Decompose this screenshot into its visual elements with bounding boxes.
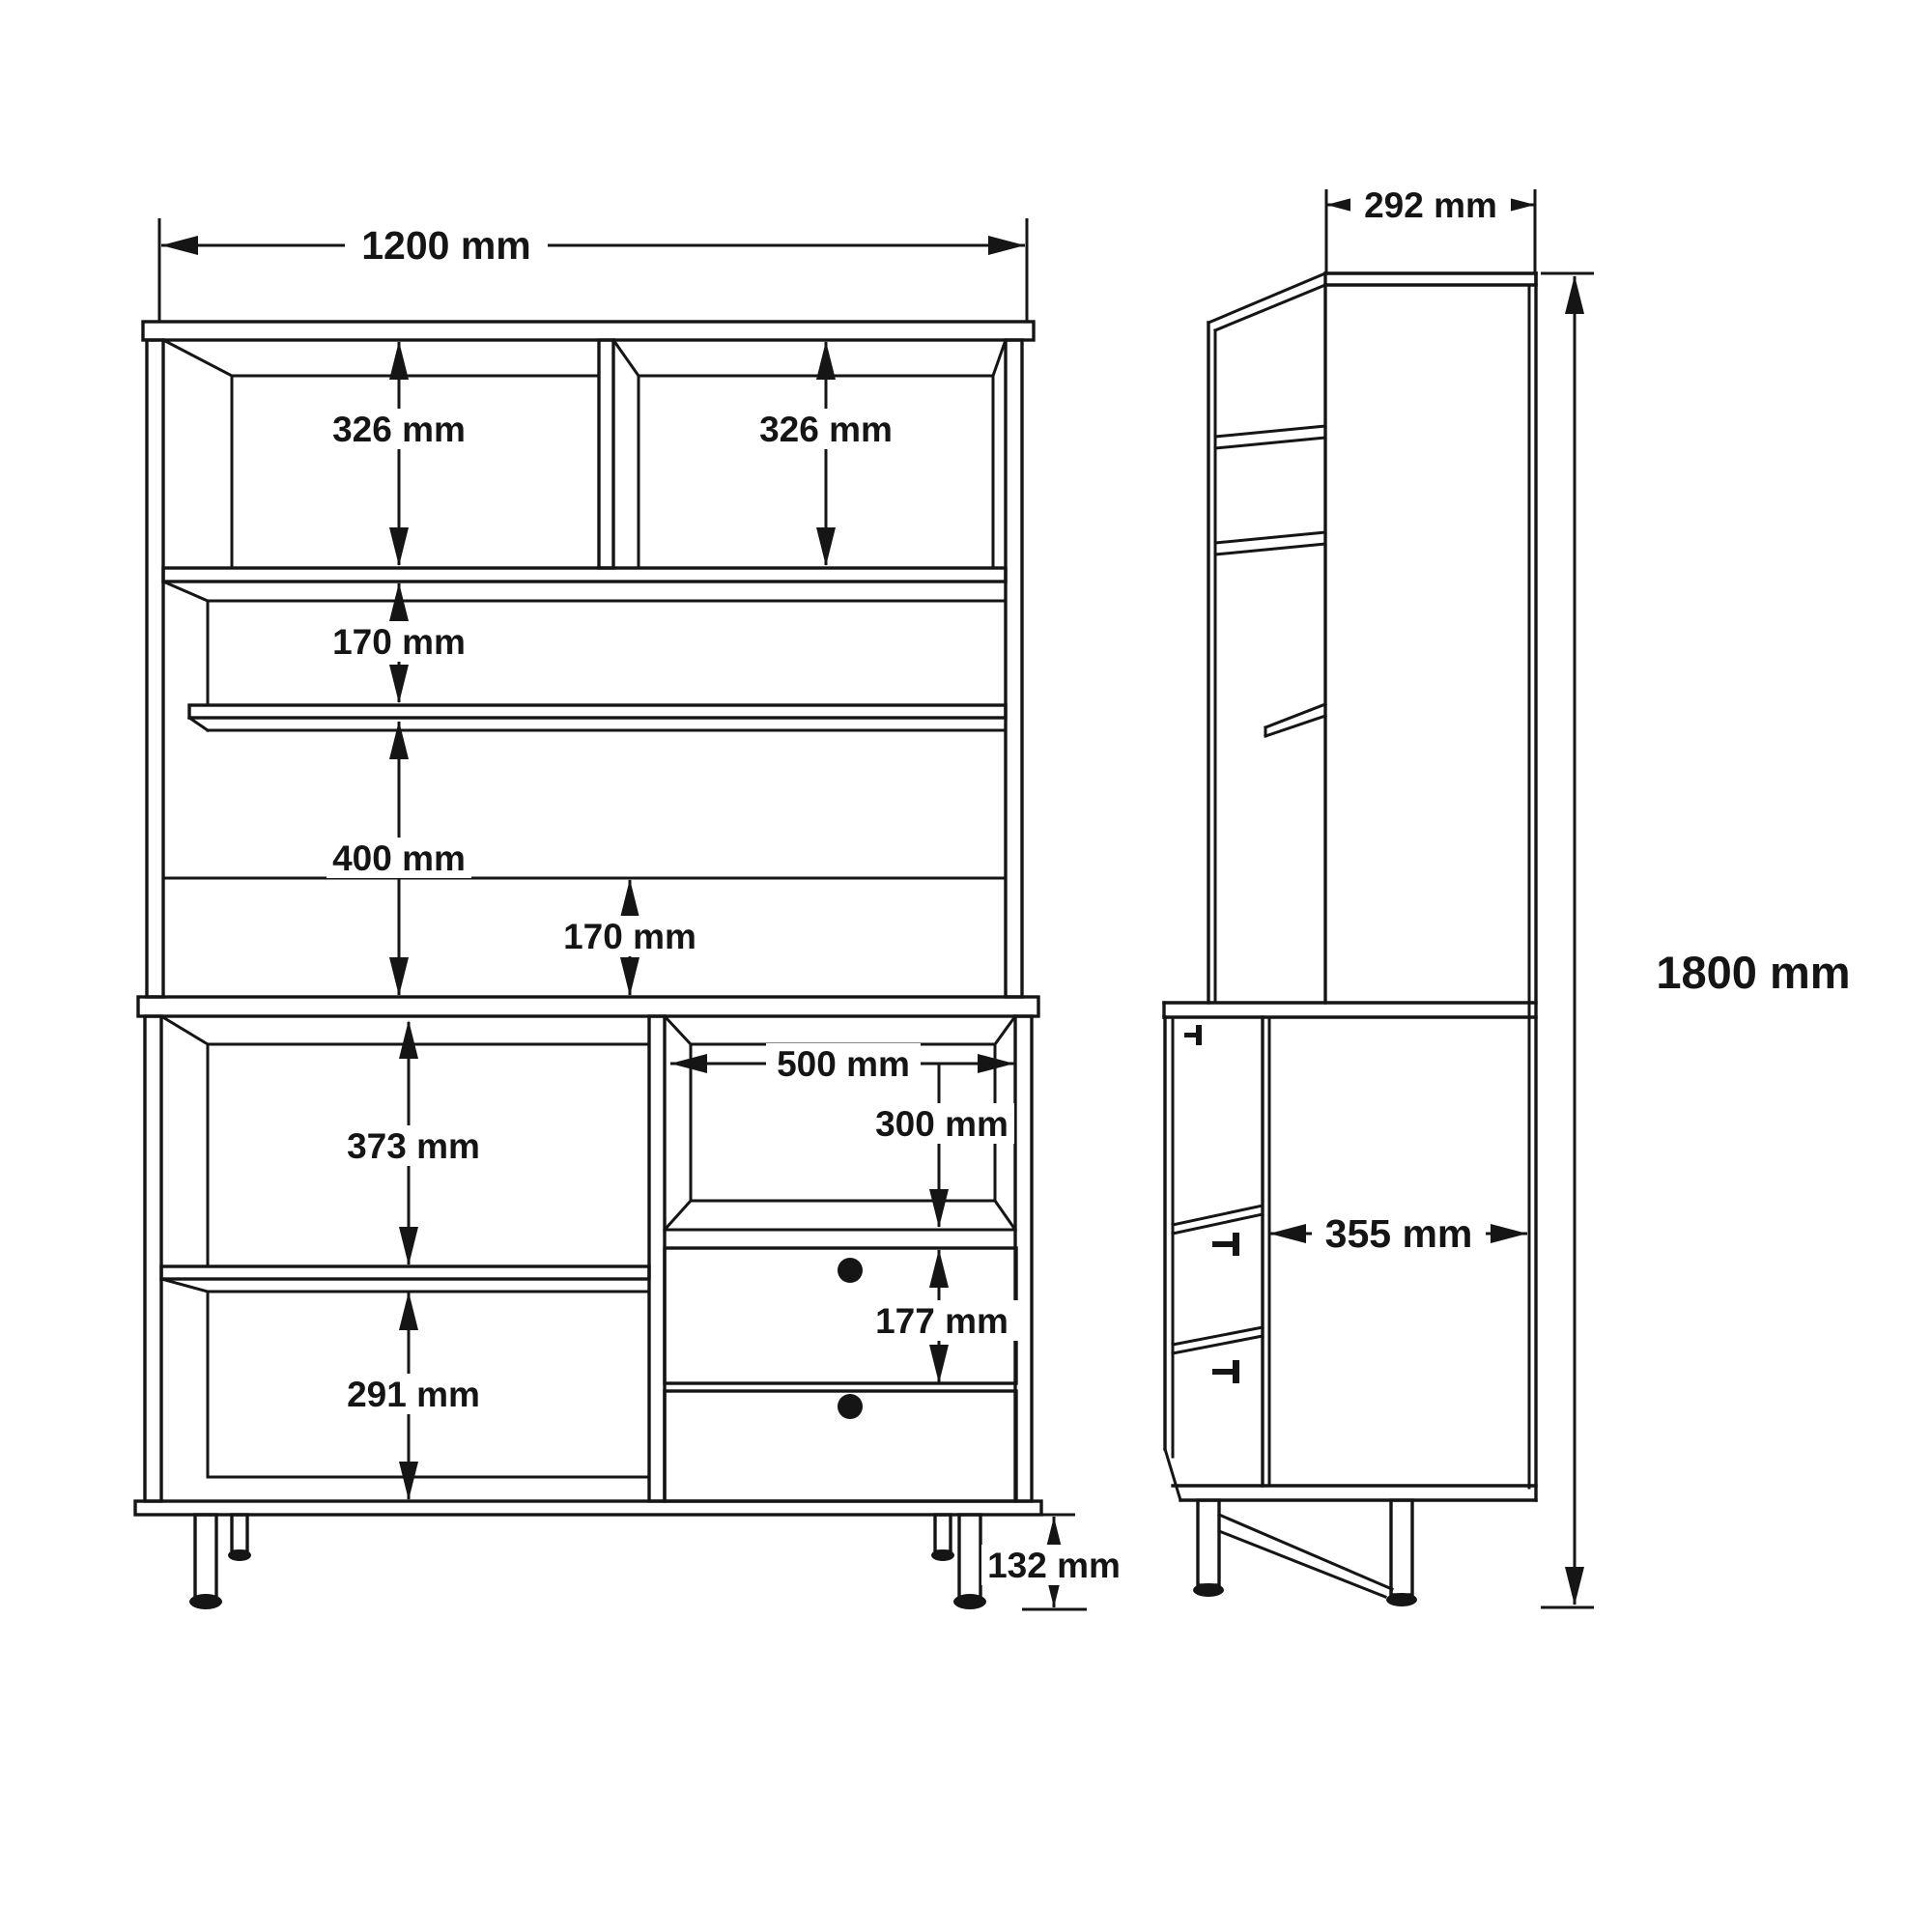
drawer-1-knob [838, 1258, 863, 1283]
back-right-leg [935, 1515, 951, 1551]
back-right-foot [931, 1549, 954, 1561]
counter-top [138, 997, 1038, 1016]
side-dimensions: 292 mm 355 mm 1800 mm [1269, 185, 1851, 1607]
front-drawers [665, 1248, 1016, 1501]
side-view: 292 mm 355 mm 1800 mm [1164, 185, 1851, 1607]
top-center-divider [599, 340, 613, 568]
label-400: 400 mm [332, 838, 466, 878]
label-326-right: 326 mm [759, 410, 893, 449]
back-left-foot [228, 1549, 251, 1561]
front-view: 1200 mm 326 mm 326 mm [135, 218, 1126, 1609]
label-170-upper: 170 mm [332, 622, 466, 662]
top-panel [143, 322, 1034, 340]
side-legs [1193, 1500, 1417, 1606]
front-right-foot [953, 1594, 986, 1609]
drawer-2-knob [838, 1394, 863, 1419]
cabinet-dimension-drawing: 1200 mm 326 mm 326 mm [0, 0, 1932, 1932]
front-left-foot [189, 1594, 222, 1609]
label-292: 292 mm [1364, 185, 1497, 225]
side-front-foot [1193, 1583, 1224, 1597]
base-left-shelf [161, 1266, 649, 1279]
label-291: 291 mm [347, 1375, 480, 1414]
label-355: 355 mm [1325, 1211, 1473, 1256]
label-170-counter: 170 mm [563, 917, 696, 956]
technical-drawing-page: 1200 mm 326 mm 326 mm [0, 0, 1932, 1932]
dim-leg-height: 132 mm [981, 1515, 1126, 1609]
hutch-shelf-1 [163, 568, 1006, 582]
dim-overall-width: 1200 mm [159, 218, 1027, 322]
dim-lower-depth: 355 mm [1269, 1211, 1527, 1256]
label-500: 500 mm [777, 1044, 910, 1084]
dim-niche-width: 500 mm [670, 1043, 1014, 1084]
side-drawer-2-handle [1212, 1360, 1239, 1383]
front-left-leg [195, 1515, 216, 1598]
label-326-left: 326 mm [332, 410, 466, 449]
side-structure [1164, 273, 1536, 1606]
front-right-leg [959, 1515, 980, 1598]
front-dimensions: 1200 mm 326 mm 326 mm [159, 218, 1126, 1609]
label-300: 300 mm [875, 1104, 1009, 1144]
dim-lower-left-upper: 373 mm [341, 1020, 486, 1265]
side-drawer-1-handle [1212, 1233, 1239, 1256]
side-front-leg [1198, 1500, 1219, 1585]
side-back-leg [1391, 1500, 1412, 1595]
dim-upper-depth: 292 mm [1326, 185, 1535, 273]
dim-niche-height: 300 mm [869, 1064, 1014, 1228]
side-back-foot [1386, 1593, 1417, 1606]
base-left-panel [145, 1016, 161, 1501]
hutch-right-panel [1006, 340, 1022, 997]
label-177: 177 mm [875, 1301, 1009, 1341]
label-132: 132 mm [987, 1546, 1121, 1585]
dim-middle-opening: 400 mm [327, 721, 471, 996]
dim-counter-gap: 170 mm [557, 879, 702, 996]
side-door-handle [1184, 1025, 1202, 1045]
hutch-shelf-2 [189, 705, 1006, 718]
front-legs [189, 1515, 986, 1609]
dim-drawer-height: 177 mm [865, 1249, 1019, 1383]
label-overall-width: 1200 mm [361, 223, 531, 268]
hutch-left-panel [147, 340, 163, 997]
base-bottom-panel [135, 1501, 1041, 1515]
label-373: 373 mm [347, 1126, 480, 1166]
base-center-divider [649, 1016, 665, 1501]
back-left-leg [232, 1515, 247, 1551]
dim-overall-height: 1800 mm [1541, 273, 1851, 1607]
dim-lower-left-bottom: 291 mm [341, 1292, 486, 1500]
label-1800: 1800 mm [1656, 947, 1850, 998]
